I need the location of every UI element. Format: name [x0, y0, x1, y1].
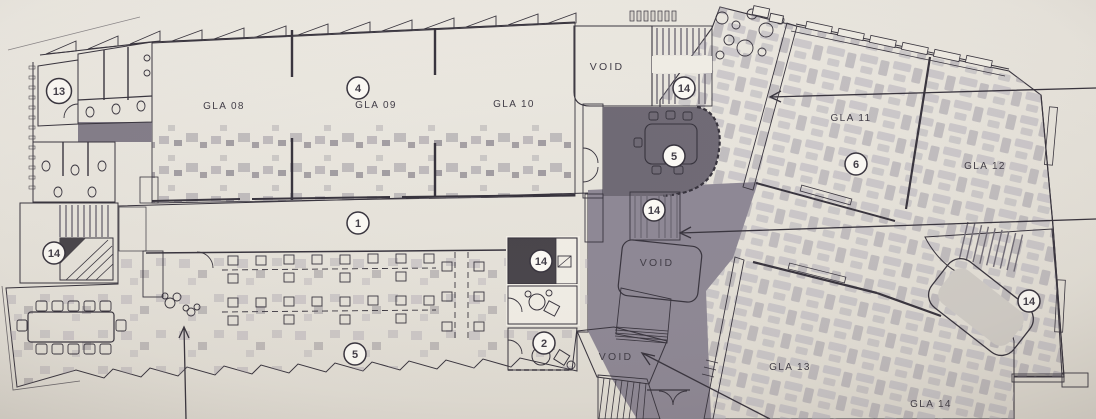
photo-vignette [0, 0, 1096, 419]
floor-plan-photo: GLA 08 GLA 09 GLA 10 GLA 11 GLA 12 GLA 1… [0, 0, 1096, 419]
floor-plan: GLA 08 GLA 09 GLA 10 GLA 11 GLA 12 GLA 1… [0, 0, 1096, 419]
